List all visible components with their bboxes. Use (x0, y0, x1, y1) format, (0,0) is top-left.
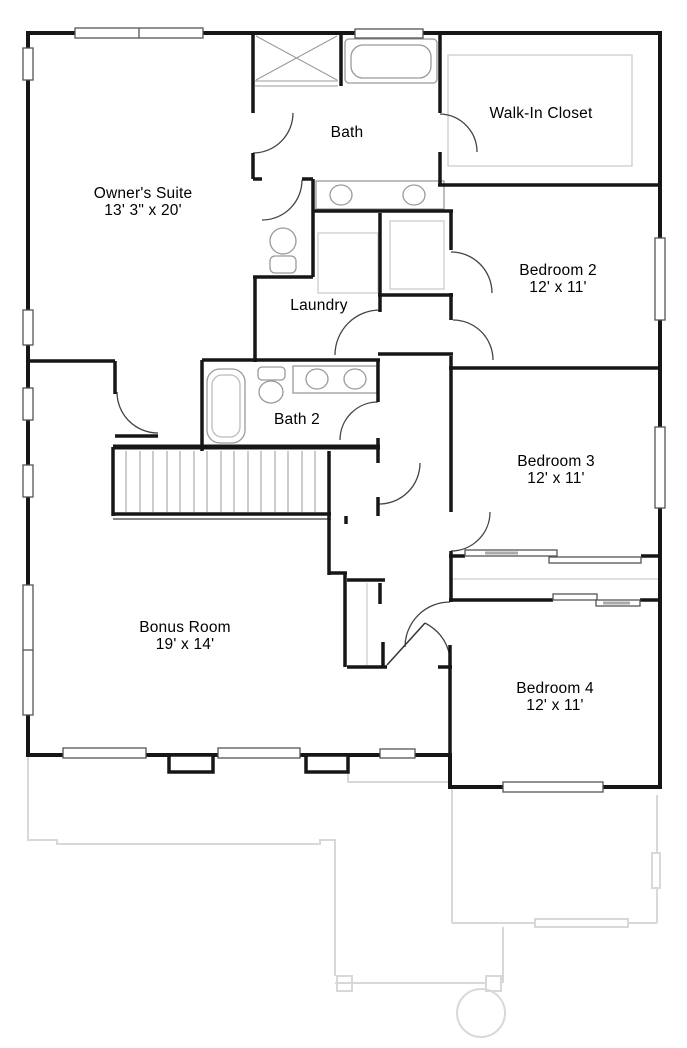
toilet-icon (270, 228, 296, 273)
bath2-toilet-icon (258, 367, 285, 403)
bedroom2-closet-shelf (390, 221, 444, 289)
floor-plan: Owner's Suite 13' 3" x 20' Bath Walk-In … (0, 0, 687, 1048)
bedroom4-closet-slider (553, 594, 597, 600)
room-label-laundry: Laundry (290, 297, 347, 314)
bath-door-arc (253, 113, 293, 153)
toilet-room-door-arc (262, 180, 302, 220)
staircase (113, 451, 331, 519)
bedroom2-door-arc (453, 320, 493, 360)
hall-closet-door-leaf (387, 623, 425, 665)
bath2-door-arc (340, 402, 378, 440)
room-label-bedroom-4: Bedroom 4 12' x 11' (516, 680, 594, 714)
bath-vanity-double-sink-icon (316, 181, 444, 209)
interior-walls (28, 33, 660, 757)
room-label-bath-2: Bath 2 (274, 411, 320, 428)
shower-icon (255, 36, 338, 86)
room-label-walk-in-closet: Walk-In Closet (490, 105, 593, 122)
bathtub-icon (345, 39, 437, 83)
windows (23, 28, 665, 792)
room-label-bath: Bath (331, 124, 364, 141)
room-label-bonus-room: Bonus Room 19' x 14' (139, 619, 231, 653)
hall-closet-door-arc (425, 623, 450, 657)
bedroom3-closet-slider (549, 557, 641, 563)
sliding-closet-doors (465, 550, 641, 606)
owners-suite-door-arc (117, 392, 158, 433)
walk-in-closet-door-arc (440, 114, 477, 152)
exterior-walls (28, 33, 660, 787)
laundry-door-arc (335, 310, 380, 355)
bedroom3-door-arc (451, 512, 490, 551)
bedroom2-closet-door-arc (451, 252, 492, 293)
laundry-cabinet (318, 233, 378, 293)
fixtures (207, 36, 444, 443)
room-label-owners-suite: Owner's Suite 13' 3" x 20' (94, 185, 193, 219)
room-label-bedroom-2: Bedroom 2 12' x 11' (519, 262, 597, 296)
bath2-vanity-double-sink-icon (293, 366, 377, 393)
stair-landing-door-arc (379, 463, 420, 504)
floor-plan-drawing (0, 0, 687, 1048)
lower-floor-outline (28, 757, 660, 1037)
bath2-bathtub-icon (207, 369, 245, 443)
room-label-bedroom-3: Bedroom 3 12' x 11' (517, 453, 595, 487)
